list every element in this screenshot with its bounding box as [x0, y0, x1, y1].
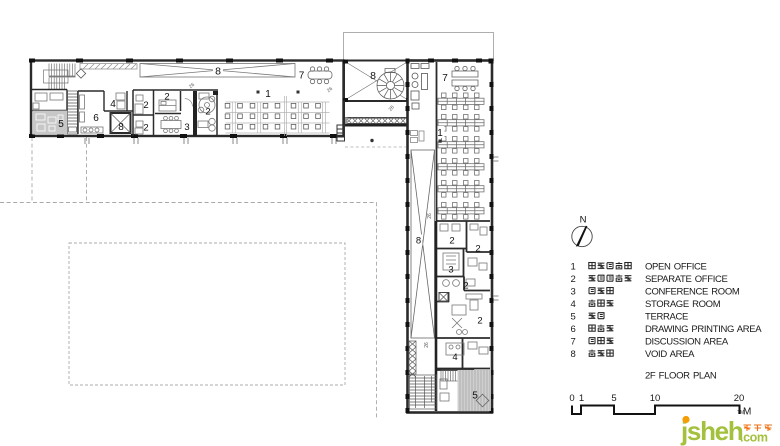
svg-text:DRAWING PRINTING AREA: DRAWING PRINTING AREA: [645, 324, 762, 335]
svg-text:10: 10: [650, 393, 661, 404]
svg-text:5: 5: [472, 391, 478, 402]
svg-text:26: 26: [427, 213, 433, 219]
svg-text:1: 1: [437, 128, 443, 139]
svg-text:2: 2: [205, 107, 210, 118]
svg-text:3: 3: [448, 265, 453, 276]
svg-text:8: 8: [118, 122, 124, 133]
svg-text:5: 5: [611, 393, 616, 404]
svg-text:3: 3: [571, 287, 576, 298]
svg-text:8: 8: [416, 236, 421, 247]
svg-text:2: 2: [143, 100, 148, 111]
svg-text:4: 4: [571, 299, 576, 310]
svg-text:6: 6: [93, 113, 99, 124]
svg-text:2F FLOOR PLAN: 2F FLOOR PLAN: [645, 371, 717, 382]
svg-text:6: 6: [571, 324, 576, 335]
svg-text:5: 5: [571, 312, 576, 323]
svg-text:1: 1: [265, 89, 271, 100]
svg-text:SEPARATE OFFICE: SEPARATE OFFICE: [645, 274, 728, 285]
svg-text:8: 8: [370, 70, 376, 82]
svg-text:2: 2: [477, 316, 482, 327]
svg-text:8: 8: [571, 349, 576, 360]
svg-text:2: 2: [571, 274, 576, 285]
svg-text:STORAGE ROOM: STORAGE ROOM: [645, 299, 721, 310]
svg-text:.com: .com: [740, 431, 768, 445]
svg-text:7: 7: [299, 71, 305, 82]
svg-text:5: 5: [58, 119, 64, 130]
svg-text:0: 0: [569, 393, 574, 404]
svg-text:2: 2: [463, 281, 468, 292]
svg-text:VOID AREA: VOID AREA: [645, 349, 695, 360]
svg-text:1: 1: [571, 262, 576, 273]
svg-text:26: 26: [424, 342, 430, 348]
svg-text:1: 1: [579, 393, 584, 404]
svg-text:4: 4: [110, 99, 116, 110]
svg-text:CONFERENCE ROOM: CONFERENCE ROOM: [645, 287, 740, 298]
svg-text:2: 2: [449, 236, 454, 247]
svg-text:20: 20: [734, 393, 745, 404]
svg-text:N: N: [580, 215, 587, 226]
svg-text:7: 7: [571, 337, 576, 348]
svg-text:4: 4: [452, 352, 457, 363]
svg-text:OPEN OFFICE: OPEN OFFICE: [645, 262, 707, 273]
svg-text:DISCUSSION AREA: DISCUSSION AREA: [645, 337, 729, 348]
svg-text:M: M: [743, 407, 751, 418]
svg-text:2: 2: [143, 123, 148, 134]
svg-text:8: 8: [215, 66, 221, 78]
svg-text:7: 7: [442, 73, 448, 84]
svg-text:TERRACE: TERRACE: [645, 312, 688, 323]
svg-text:2: 2: [164, 92, 169, 103]
svg-text:2: 2: [475, 244, 480, 255]
svg-text:TM: TM: [737, 410, 744, 416]
svg-text:3: 3: [184, 122, 189, 133]
